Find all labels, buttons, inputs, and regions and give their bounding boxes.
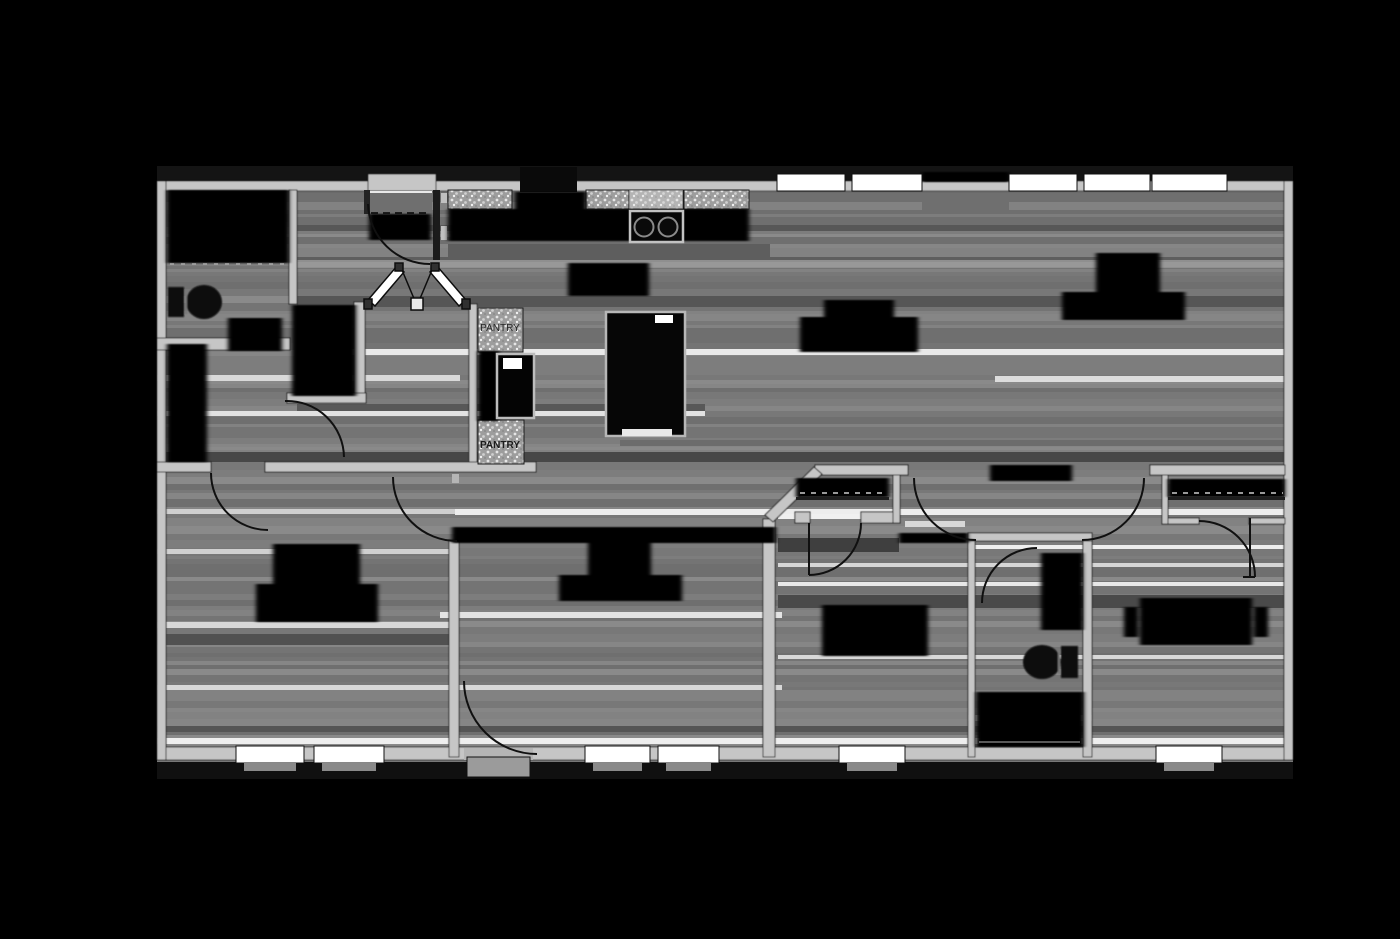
svg-text:PANTRY: PANTRY (480, 323, 520, 334)
svg-text:PANTRY: PANTRY (480, 440, 520, 451)
